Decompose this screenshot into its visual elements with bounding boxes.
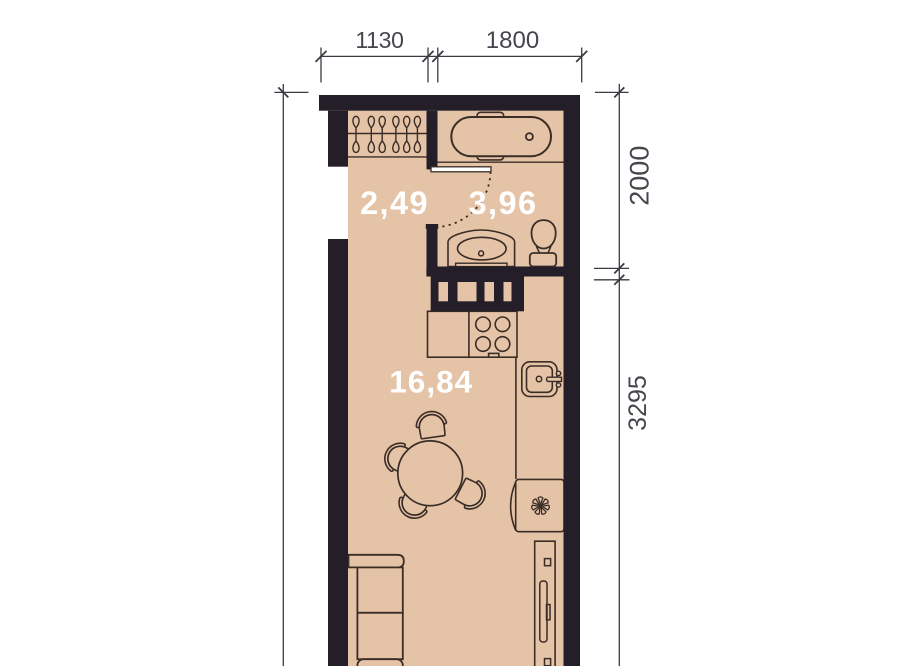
svg-text:3,96: 3,96 (469, 185, 538, 221)
svg-text:2,49: 2,49 (360, 185, 429, 221)
svg-text:16,84: 16,84 (389, 364, 473, 400)
svg-text:2000: 2000 (625, 146, 655, 206)
svg-text:1800: 1800 (486, 27, 539, 54)
svg-text:1130: 1130 (355, 27, 403, 53)
svg-text:3295: 3295 (624, 375, 652, 431)
